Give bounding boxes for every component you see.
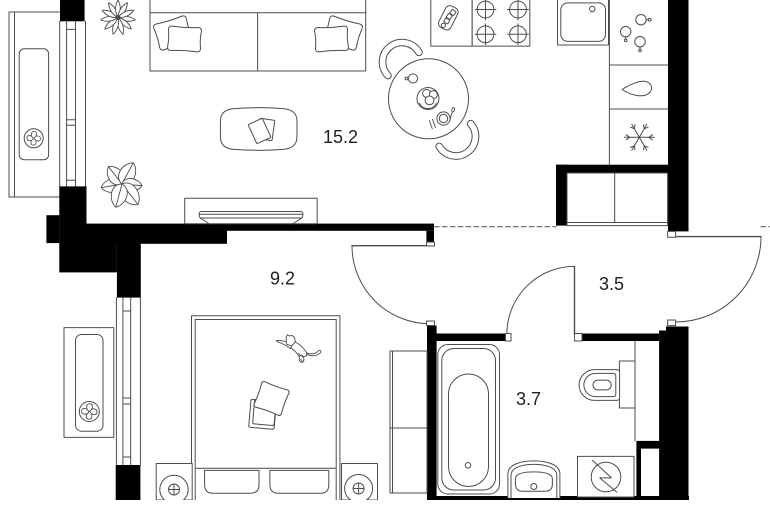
svg-text:15.2: 15.2	[323, 127, 358, 147]
svg-text:3.7: 3.7	[516, 389, 541, 409]
svg-text:3.5: 3.5	[599, 274, 624, 294]
svg-text:9.2: 9.2	[270, 269, 295, 289]
